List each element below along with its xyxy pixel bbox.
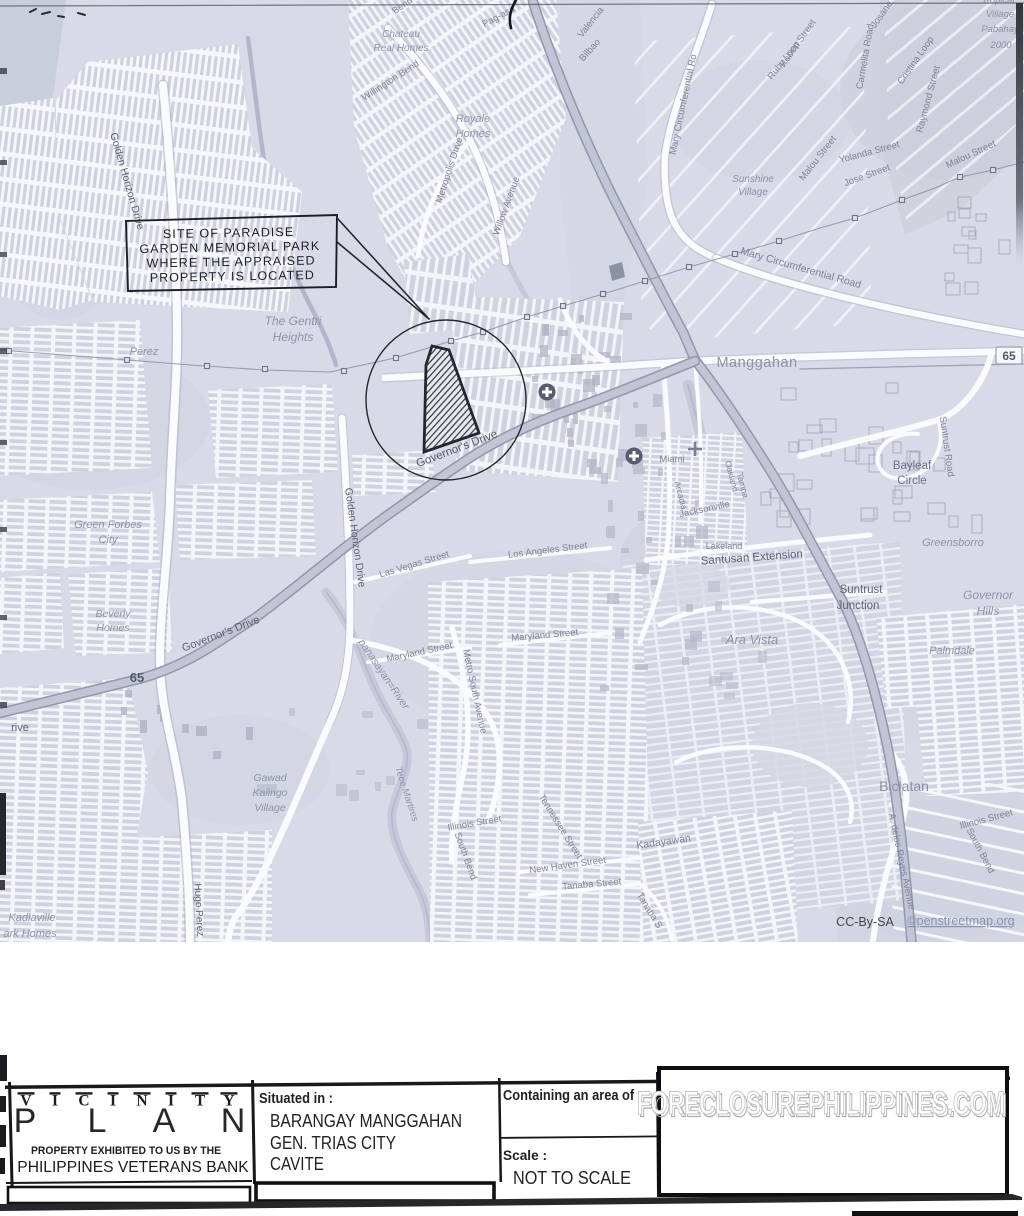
svg-text:PROPERTY EXHIBITED TO US BY TH: PROPERTY EXHIBITED TO US BY THE	[31, 1145, 221, 1157]
svg-text:Beverly: Beverly	[95, 608, 131, 620]
svg-text:Heights: Heights	[273, 330, 314, 344]
svg-text:Hills: Hills	[977, 604, 1000, 618]
svg-text:Royale: Royale	[456, 113, 490, 125]
svg-text:Chateau: Chateau	[382, 29, 420, 40]
svg-text:©penstreetmap.org: ©penstreetmap.org	[907, 914, 1014, 928]
svg-text:Sunshine: Sunshine	[732, 174, 774, 185]
svg-text:Bayleaf: Bayleaf	[893, 460, 932, 472]
svg-text:Junction: Junction	[837, 600, 880, 612]
svg-text:Scale :: Scale :	[503, 1147, 547, 1163]
svg-text:Village: Village	[738, 187, 768, 198]
svg-text:Circle: Circle	[897, 475, 926, 487]
svg-text:PROPERTY IS LOCATED: PROPERTY IS LOCATED	[150, 268, 315, 285]
svg-text:Kaiingo: Kaiingo	[252, 787, 287, 799]
svg-text:L: L	[88, 1102, 107, 1140]
svg-text:T: T	[195, 1093, 206, 1110]
svg-text:City: City	[99, 534, 119, 546]
svg-text:Village: Village	[254, 802, 285, 814]
svg-text:The Gentri: The Gentri	[265, 314, 322, 328]
svg-text:ark Homes: ark Homes	[3, 928, 57, 940]
svg-text:PHILIPPINES VETERANS BANK: PHILIPPINES VETERANS BANK	[17, 1159, 249, 1176]
svg-text:Ara Vista: Ara Vista	[725, 632, 779, 647]
svg-text:Suntrust: Suntrust	[840, 584, 884, 596]
svg-text:A: A	[153, 1102, 176, 1140]
svg-text:BARANGAY MANGGAHAN: BARANGAY MANGGAHAN	[270, 1111, 462, 1131]
svg-text:Real Homes: Real Homes	[373, 43, 428, 54]
svg-text:Miami: Miami	[659, 454, 684, 465]
svg-text:Pabahay: Pabahay	[981, 24, 1020, 35]
svg-text:FORECLOSUREPHILIPPINES.COM: FORECLOSUREPHILIPPINES.COM	[637, 1085, 1005, 1121]
svg-text:Manggahan: Manggahan	[716, 355, 797, 371]
svg-text:I: I	[52, 1093, 58, 1110]
svg-text:Biclatan: Biclatan	[879, 778, 929, 794]
svg-text:Palmdale: Palmdale	[929, 645, 975, 657]
svg-text:Perez: Perez	[130, 346, 159, 358]
svg-text:N: N	[221, 1102, 246, 1140]
svg-text:CAVITE: CAVITE	[270, 1154, 324, 1174]
svg-text:rive: rive	[11, 722, 29, 734]
svg-text:N: N	[136, 1093, 147, 1110]
svg-text:Situated in :: Situated in :	[259, 1091, 333, 1107]
svg-text:Village: Village	[986, 9, 1014, 20]
svg-text:CC-By-SA: CC-By-SA	[836, 915, 894, 929]
svg-text:Greensborro: Greensborro	[922, 537, 984, 549]
svg-text:2000: 2000	[989, 40, 1012, 51]
svg-text:NOT TO SCALE: NOT TO SCALE	[513, 1167, 631, 1188]
svg-text:P: P	[14, 1102, 37, 1140]
svg-text:Containing an area of :: Containing an area of :	[503, 1088, 642, 1104]
svg-text:65: 65	[130, 670, 144, 685]
svg-text:Green Forbes: Green Forbes	[74, 519, 142, 531]
svg-text:Homes: Homes	[96, 622, 130, 634]
svg-text:SITE OF PARADISE: SITE OF PARADISE	[163, 225, 294, 241]
svg-text:Lakeland: Lakeland	[706, 541, 743, 551]
svg-text:Governor: Governor	[963, 588, 1014, 602]
svg-text:Kadlaville: Kadlaville	[8, 912, 55, 924]
svg-text:I: I	[110, 1093, 116, 1110]
svg-text:65: 65	[1002, 349, 1016, 363]
svg-text:Gawad: Gawad	[253, 772, 287, 784]
svg-text:GEN. TRIAS CITY: GEN. TRIAS CITY	[270, 1133, 396, 1153]
